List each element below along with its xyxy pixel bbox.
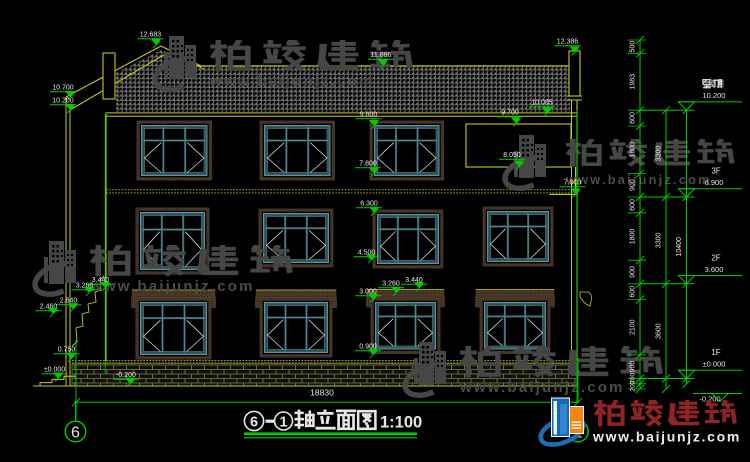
svg-text:3.600: 3.600	[705, 265, 724, 274]
svg-text:600: 600	[630, 199, 637, 211]
svg-text:500: 500	[630, 41, 637, 53]
svg-text:2100: 2100	[630, 319, 637, 335]
svg-text:10.700: 10.700	[52, 85, 74, 92]
svg-text:18830: 18830	[310, 388, 334, 398]
svg-text:www.baijunjz.com: www.baijunjz.com	[565, 172, 712, 187]
svg-text:10400: 10400	[676, 237, 683, 257]
svg-text:10.200: 10.200	[52, 98, 74, 105]
svg-text:12.386: 12.386	[557, 39, 579, 46]
svg-text:1:100: 1:100	[380, 414, 422, 432]
svg-text:6: 6	[71, 425, 80, 442]
svg-text:±0.000: ±0.000	[44, 367, 65, 374]
svg-text:9.700: 9.700	[501, 110, 519, 117]
svg-text:1800: 1800	[630, 229, 637, 245]
svg-text:www.baijunjz.com: www.baijunjz.com	[89, 278, 255, 295]
svg-text:3300: 3300	[656, 233, 663, 249]
svg-text:1983: 1983	[630, 74, 637, 90]
svg-text:3600: 3600	[656, 323, 663, 339]
svg-text:7.000: 7.000	[564, 180, 582, 187]
svg-text:1800: 1800	[630, 142, 637, 158]
svg-text:6: 6	[250, 415, 258, 431]
svg-text:www.baijunjz.com: www.baijunjz.com	[592, 429, 741, 445]
svg-text:200: 200	[630, 380, 637, 391]
svg-text:900: 900	[630, 361, 637, 373]
svg-text:10.085: 10.085	[531, 100, 553, 107]
svg-text:900: 900	[630, 179, 637, 191]
svg-text:6.900: 6.900	[705, 178, 724, 187]
svg-text:600: 600	[630, 286, 637, 298]
svg-text:0.750: 0.750	[58, 347, 76, 354]
svg-text:3.260: 3.260	[382, 281, 400, 288]
svg-text:9.600: 9.600	[360, 112, 378, 119]
svg-text:2F: 2F	[711, 253, 720, 262]
svg-text:www.baijunjz.com: www.baijunjz.com	[459, 379, 625, 396]
svg-text:±0.000: ±0.000	[703, 360, 726, 369]
svg-text:1F: 1F	[711, 348, 720, 357]
svg-text:3300: 3300	[656, 146, 663, 162]
svg-text:3F: 3F	[711, 167, 720, 176]
svg-text:600: 600	[630, 112, 637, 124]
svg-text:11.886: 11.886	[371, 52, 392, 59]
svg-text:6.300: 6.300	[360, 201, 378, 208]
svg-text:900: 900	[630, 266, 637, 278]
svg-text:1: 1	[279, 415, 287, 431]
svg-text:www.baijunjz.com: www.baijunjz.com	[209, 73, 375, 90]
svg-text:7.800: 7.800	[359, 161, 377, 168]
svg-text:8.050: 8.050	[503, 152, 521, 159]
svg-text:10.200: 10.200	[703, 91, 726, 100]
svg-text:12.683: 12.683	[140, 32, 162, 39]
